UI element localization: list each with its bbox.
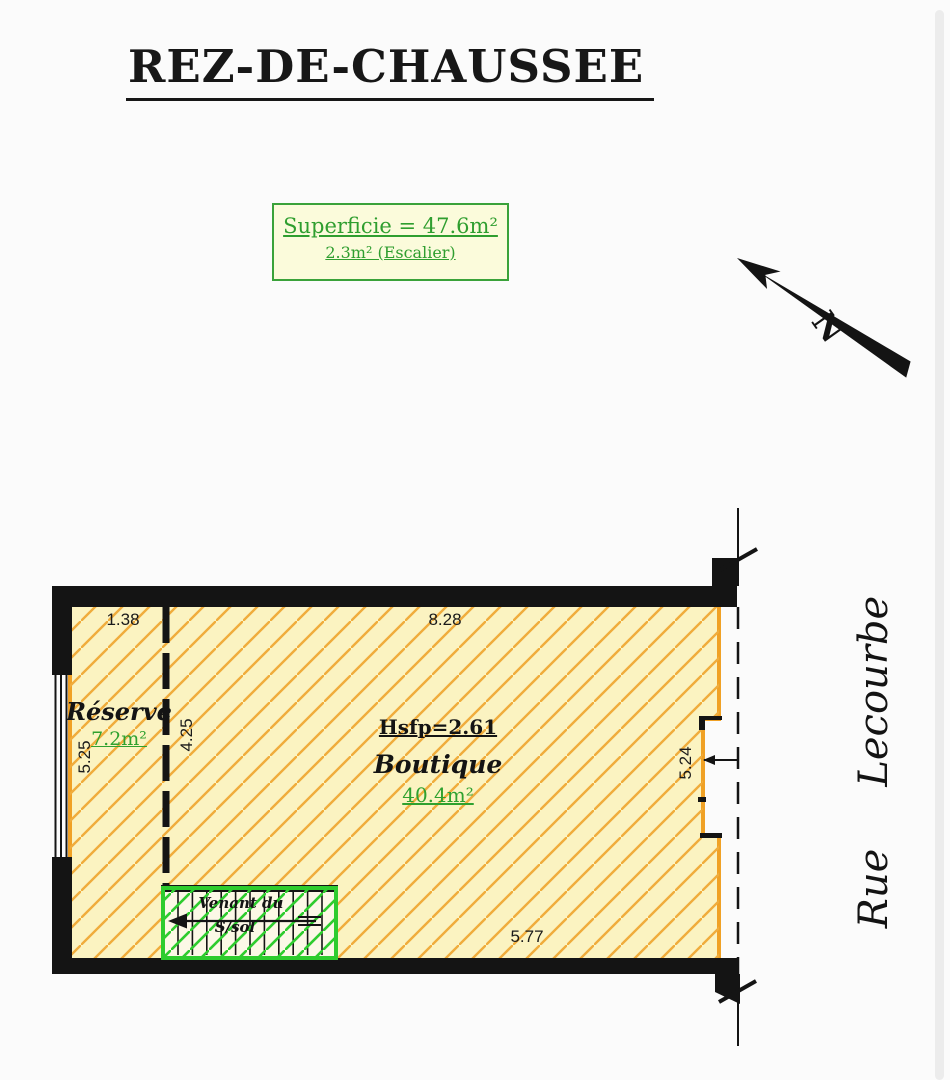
window-left-icon <box>56 675 67 857</box>
room-name-reserve: Réserve <box>66 697 172 726</box>
dim-top: 8.28 <box>417 610 473 630</box>
page: { "title": "REZ-DE-CHAUSSEE", "area_box"… <box>0 0 950 1080</box>
dim-bottom: 5.77 <box>499 927 555 947</box>
wall-top <box>52 586 737 607</box>
stair-area-text: 2.3m² (Escalier) <box>274 243 507 262</box>
room-area-reserve: 7.2m² <box>66 728 172 750</box>
wall-bottom <box>52 958 737 974</box>
floor-plan-drawing: N <box>0 0 950 1080</box>
stair-label-line1: Venant du <box>176 895 306 912</box>
dim-top-left: 1.38 <box>95 610 151 630</box>
stair-label-line2: S/sol <box>170 919 300 936</box>
area-summary-box: Superficie = 47.6m² 2.3m² (Escalier) <box>272 203 509 281</box>
room-name-boutique: Boutique <box>373 750 503 779</box>
dim-right: 5.24 <box>676 735 696 791</box>
street-word-rue: Rue <box>851 849 897 929</box>
page-edge-strip <box>935 10 944 1080</box>
wall-bottom-right-return <box>715 974 740 1004</box>
north-arrow-icon: N <box>720 246 919 396</box>
wall-left-upper <box>52 607 72 675</box>
street-word-lecourbe: Lecourbe <box>851 596 897 787</box>
page-title: REZ-DE-CHAUSSEE <box>126 40 654 101</box>
north-label: N <box>804 304 852 350</box>
dim-partition: 4.25 <box>177 707 197 763</box>
room-area-boutique: 40.4m² <box>378 783 498 807</box>
street-name: Rue Lecourbe <box>851 582 897 942</box>
wall-left-lower <box>52 857 72 958</box>
total-area-text: Superficie = 47.6m² <box>274 214 507 238</box>
ceiling-height-note: Hsfp=2.61 <box>378 715 498 739</box>
